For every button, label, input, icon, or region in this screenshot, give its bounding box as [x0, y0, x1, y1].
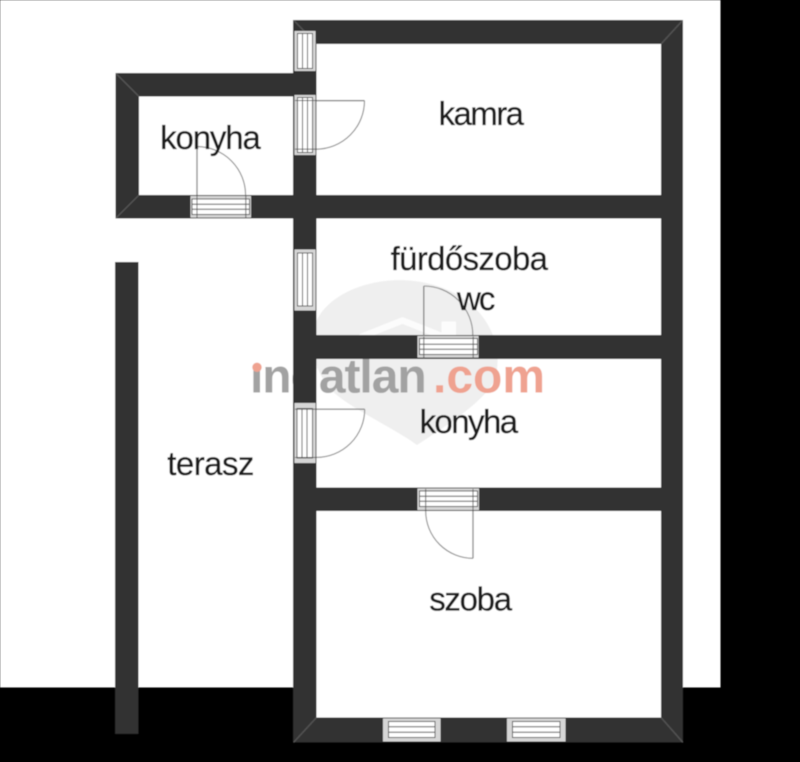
svg-text:fürdőszoba: fürdőszoba	[391, 240, 549, 277]
svg-text:terasz: terasz	[167, 445, 254, 482]
svg-text:kamra: kamra	[439, 95, 525, 132]
svg-text:szoba: szoba	[429, 580, 513, 617]
svg-text:wc: wc	[456, 280, 495, 317]
svg-text:konyha: konyha	[160, 119, 261, 156]
svg-text:konyha: konyha	[419, 403, 518, 440]
